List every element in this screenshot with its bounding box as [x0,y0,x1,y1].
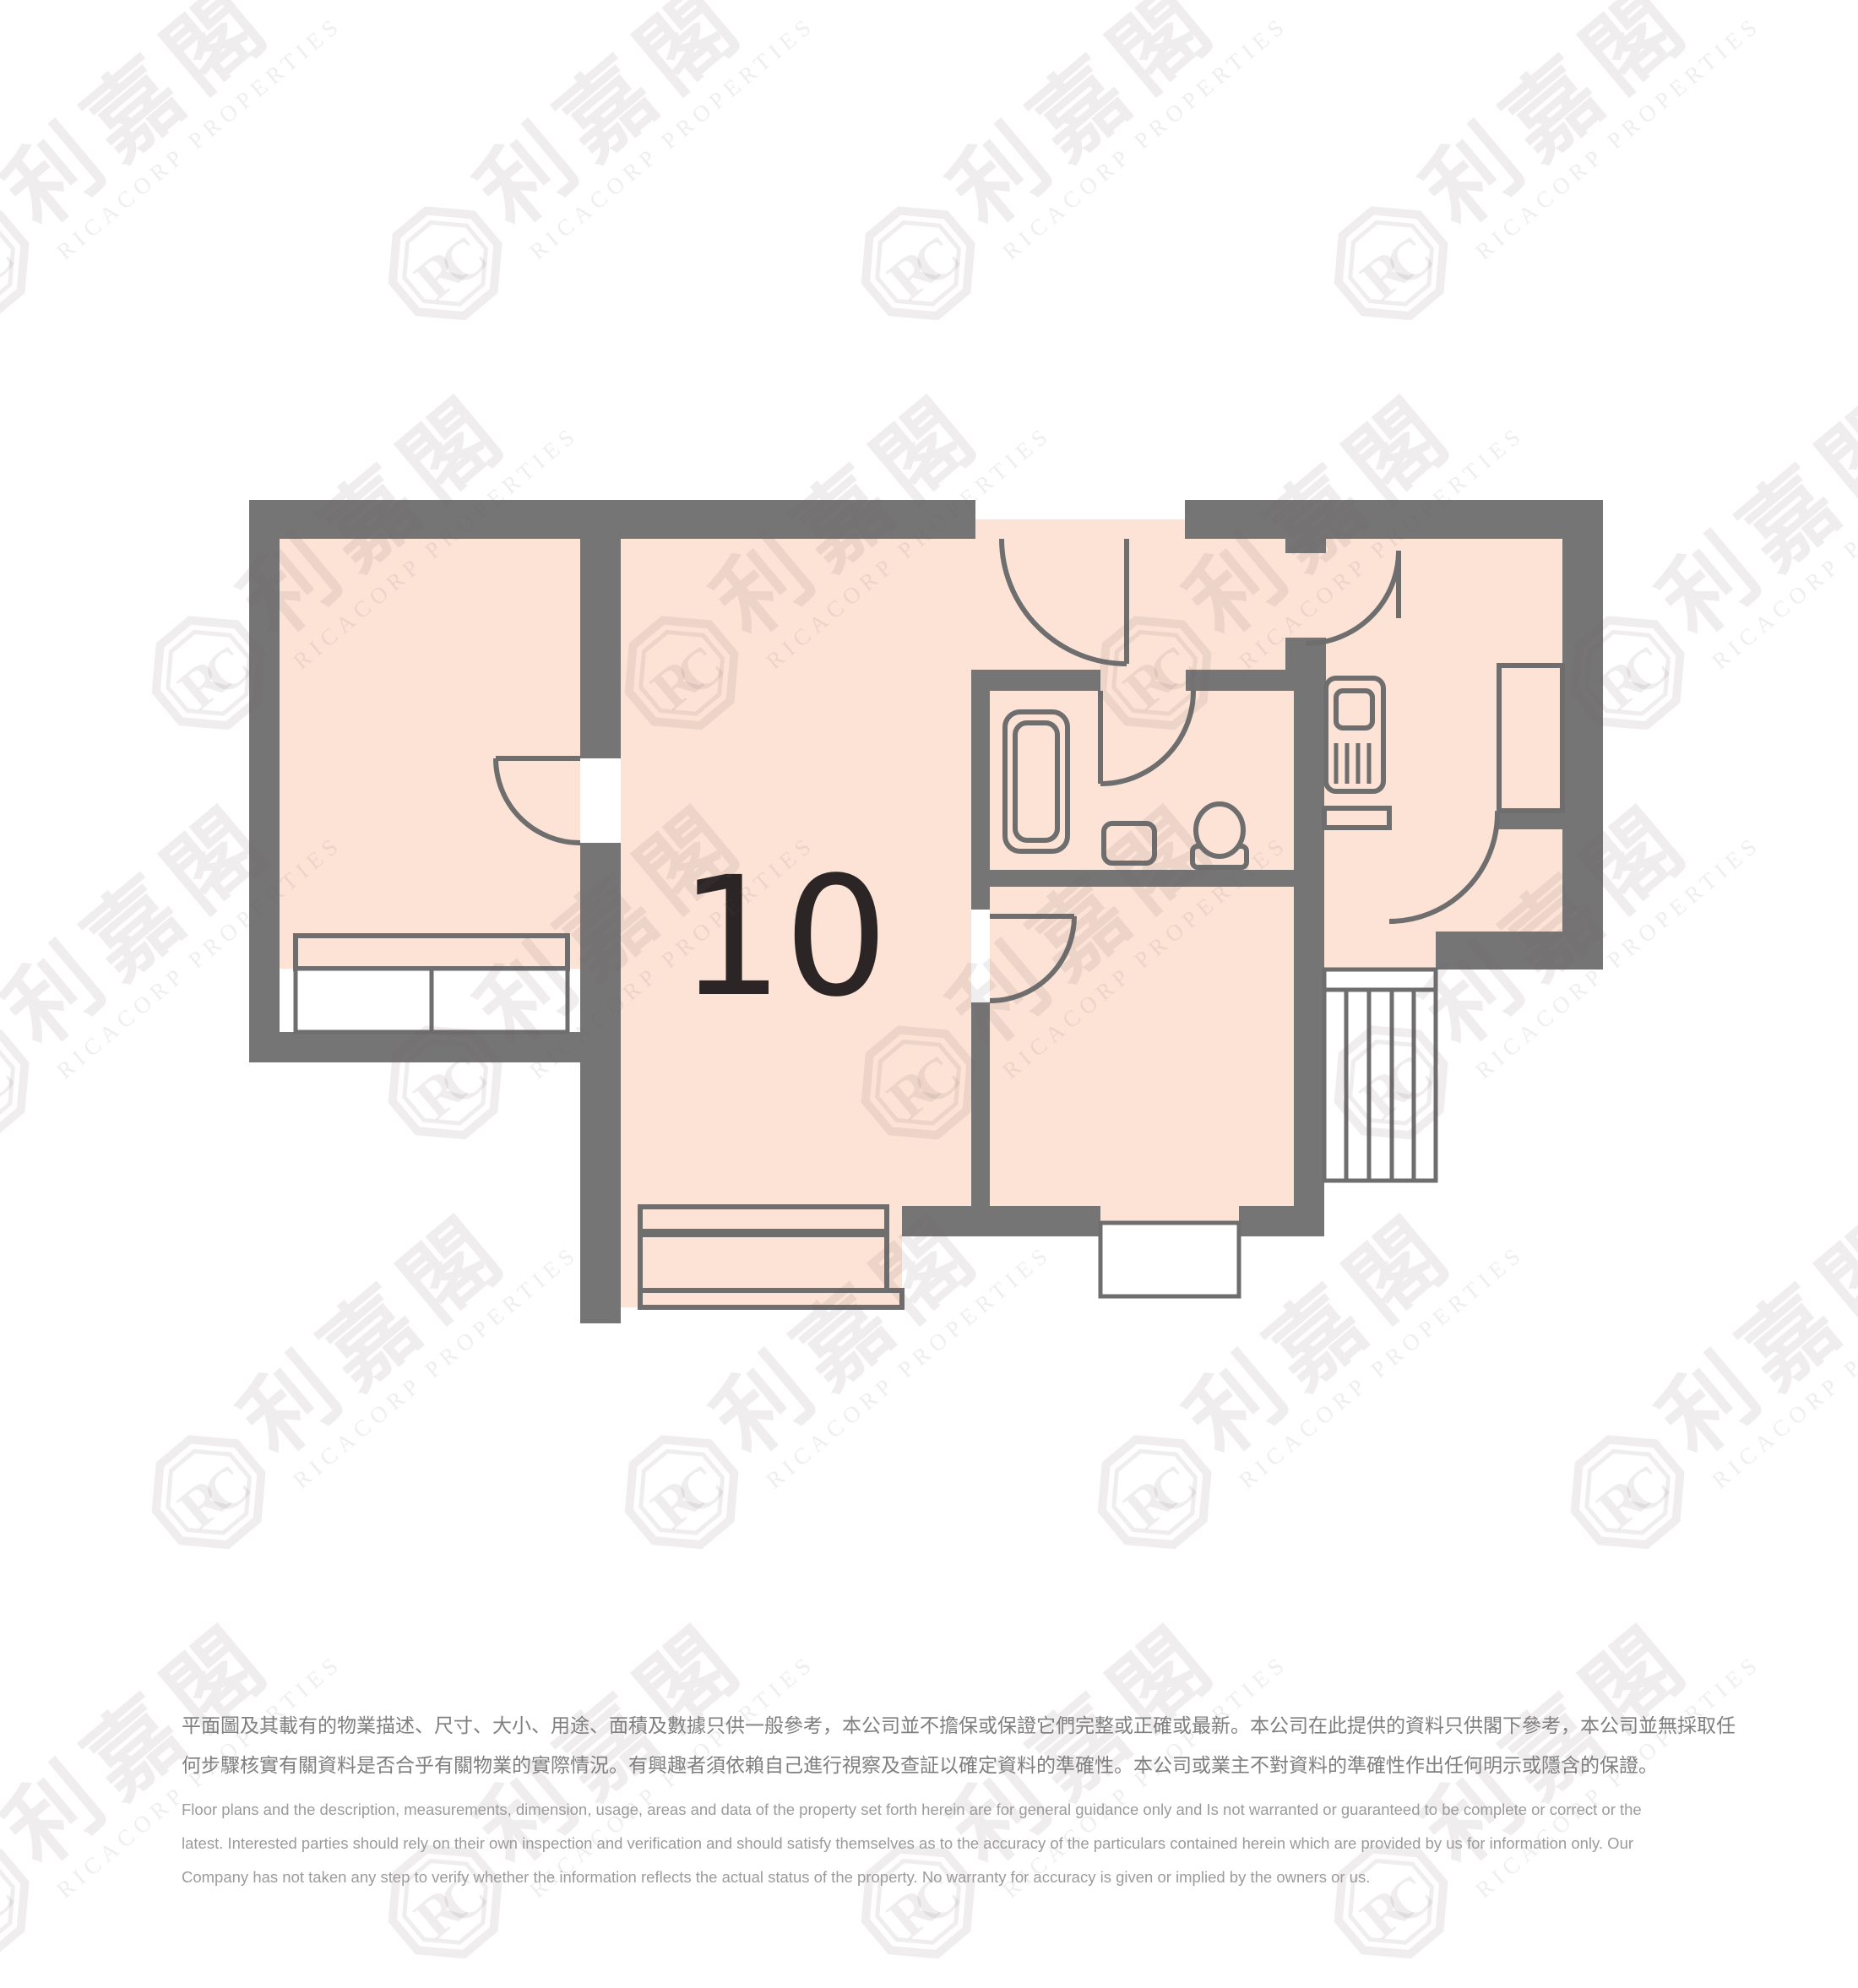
disclaimer-chinese: 平面圖及其載有的物業描述、尺寸、大小、用途、面積及數據只供一般參考，本公司並不擔… [182,1706,1693,1785]
room-bedroom-right [990,887,1294,1206]
toilet [1192,804,1247,867]
room-bedroom-left [280,539,580,969]
stove-unit [1326,678,1383,791]
wall-bath-left-upper [971,670,990,910]
wall-top-mid [1185,500,1286,539]
room-entry-corridor [971,519,1324,691]
svg-text:R: R [0,1874,3,1950]
wall-tooth-top [1285,539,1326,553]
wall-bath-bottom [990,870,1294,887]
svg-text:C: C [0,1860,27,1936]
wall-bed-left-lower [971,1002,990,1236]
wall-top-right [1286,500,1603,539]
wall-bath-top-left [971,670,1100,691]
disclaimer-english: Floor plans and the description, measure… [182,1793,1693,1894]
wall-left-outer [249,500,280,1062]
disclaimer-en-line2: latest. Interested parties should rely o… [182,1827,1693,1860]
floorplan-page: { "floorplan": { "unit_label": "10" }, "… [0,0,1858,1858]
wall-kitchen-left [1294,691,1324,1236]
wall-bottom-right [1436,932,1603,970]
wall-living-bottom [887,1206,990,1236]
bathtub [1005,712,1068,851]
wall-bath-top-right [1186,670,1326,691]
floorplan-svg: 10 [0,0,1858,1858]
wall-bed-bottom-left [990,1206,1100,1236]
wall-partition-lower [580,843,621,1323]
drying-platform [1324,970,1436,1181]
disclaimer-en-line1: Floor plans and the description, measure… [182,1793,1693,1827]
wall-stub-kitchen [1495,811,1564,829]
wall-top-left [249,500,975,539]
balcony-mouth [1324,932,1436,970]
window-sill-left [296,936,568,969]
wall-bed-bottom-right [1239,1206,1324,1236]
unit-number-label: 10 [679,841,888,1033]
wall-right-outer [1562,500,1603,970]
disclaimer-cn-line2: 何步驟核實有關資料是否合乎有關物業的實際情況。有興趣者須依賴自己進行視察及查証以… [182,1746,1693,1785]
window-right-bedroom [1100,1206,1239,1296]
wall-partition-upper [580,539,621,758]
bay-window [621,1206,902,1307]
wall-left-bottom [249,1032,580,1062]
wash-basin [1104,823,1154,863]
disclaimer-en-line3: Company has not taken any step to verify… [182,1860,1693,1894]
disclaimer: 平面圖及其載有的物業描述、尺寸、大小、用途、面積及數據只供一般參考，本公司並不擔… [182,1706,1693,1894]
disclaimer-cn-line1: 平面圖及其載有的物業描述、尺寸、大小、用途、面積及數據只供一般參考，本公司並不擔… [182,1706,1693,1746]
